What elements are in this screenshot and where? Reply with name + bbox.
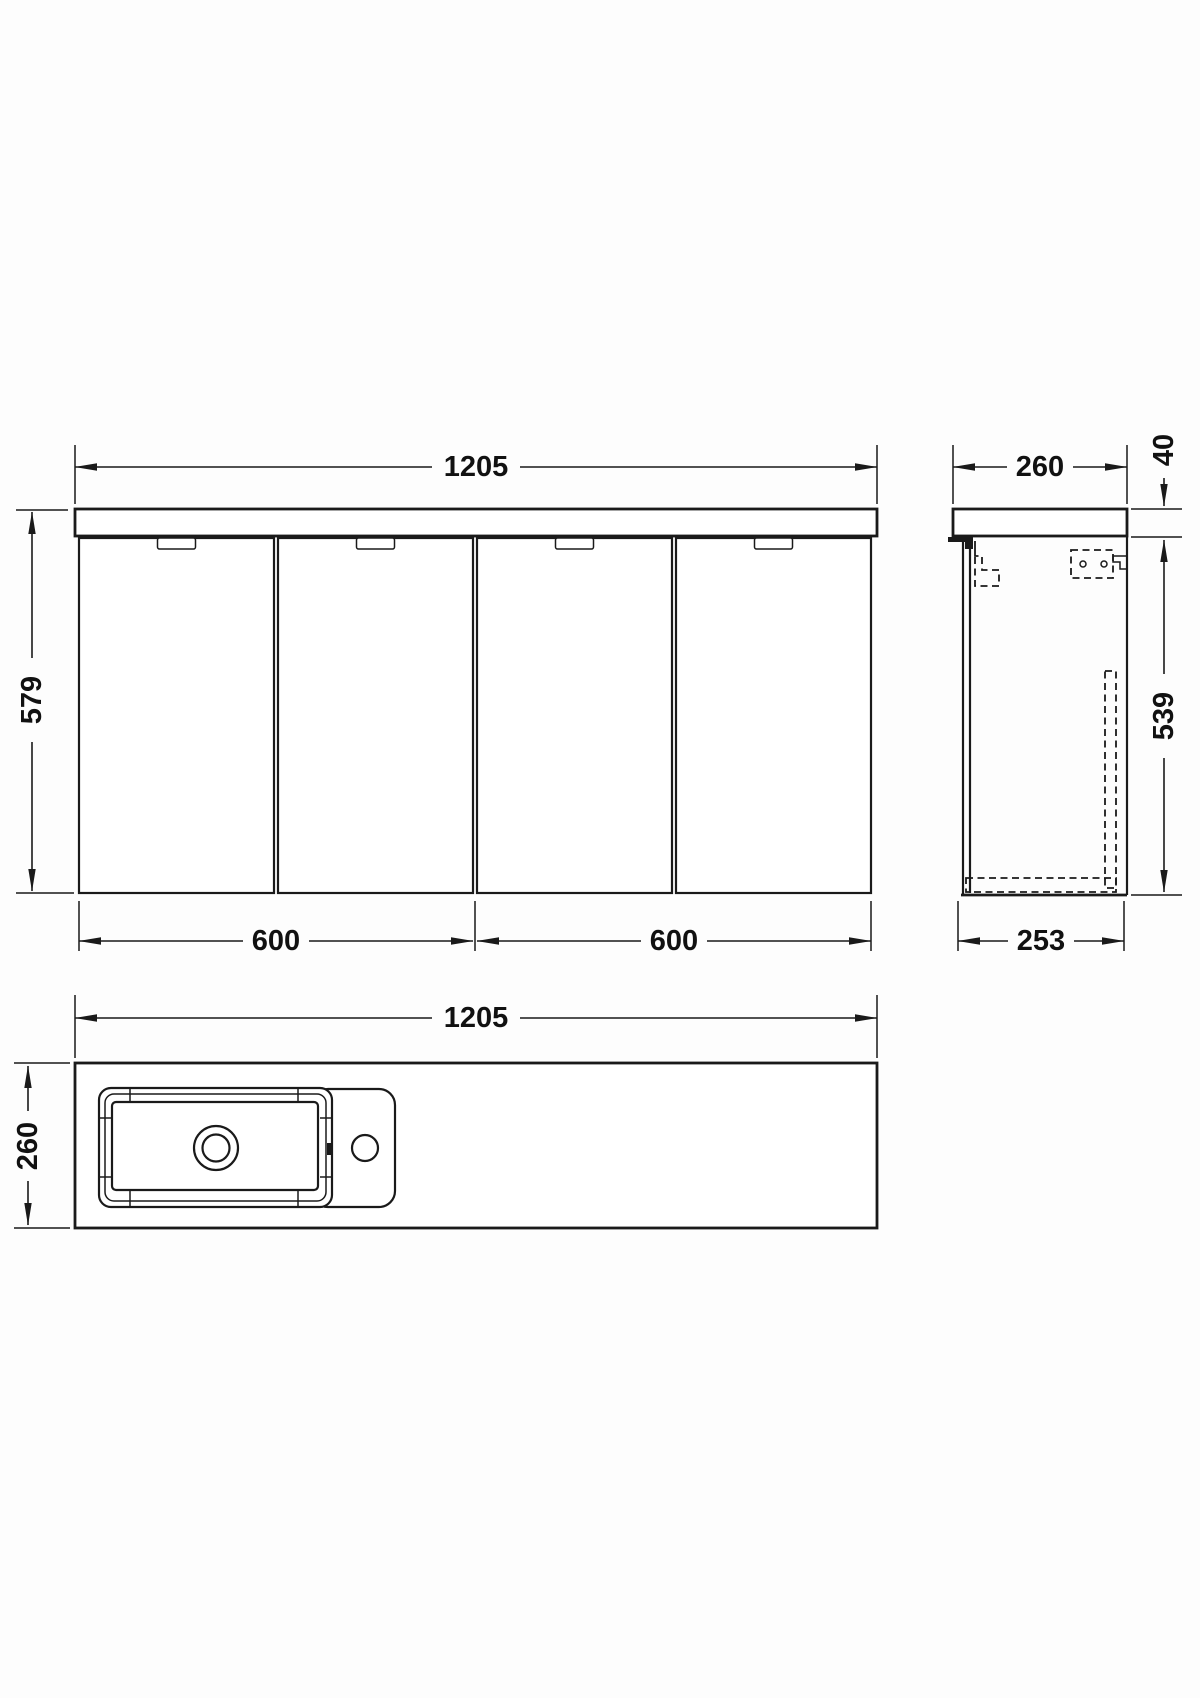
technical-drawing-page: 1205 579 600 600 — [0, 0, 1200, 1698]
cabinet-height-label: 539 — [1148, 692, 1180, 740]
basin-overflow-slot — [327, 1143, 331, 1155]
front-right-unit-width-label: 600 — [650, 925, 698, 957]
plan-width-label: 1205 — [444, 1002, 509, 1034]
bracket-screw-hole-2 — [1101, 561, 1107, 567]
tap-hole — [352, 1135, 378, 1161]
worktop-thickness-dimension: 40 — [1131, 422, 1182, 537]
front-door-1 — [79, 538, 274, 893]
cabinet-height-dimension: 539 — [1131, 540, 1182, 895]
front-unit-width-dimensions: 600 600 — [79, 901, 871, 957]
plan-depth-label: 260 — [12, 1122, 44, 1170]
bracket-screw-hole-1 — [1080, 561, 1086, 567]
side-depth-dimension: 260 — [953, 445, 1127, 504]
front-elevation-view: 1205 579 600 600 — [16, 445, 877, 957]
door-4-handle-notch — [755, 538, 793, 549]
front-door-4 — [676, 538, 871, 893]
door-3-handle-notch — [556, 538, 594, 549]
front-width-label: 1205 — [444, 451, 509, 483]
side-back-rail-hidden — [1105, 671, 1116, 888]
worktop-thickness-label: 40 — [1148, 434, 1180, 466]
side-hinge-plate-hidden — [975, 541, 999, 586]
side-wall-hook — [1113, 556, 1127, 569]
basin-drain-inner — [203, 1135, 230, 1162]
cabinet-depth-label: 253 — [1017, 925, 1065, 957]
side-worktop — [953, 509, 1127, 536]
plan-depth-dimension: 260 — [12, 1063, 70, 1228]
front-height-dimension: 579 — [16, 510, 74, 893]
door-1-handle-notch — [158, 538, 196, 549]
side-section-view: 260 40 539 253 — [948, 422, 1182, 957]
door-2-handle-notch — [357, 538, 395, 549]
plan-width-dimension: 1205 — [75, 995, 877, 1058]
front-worktop — [75, 509, 877, 536]
side-depth-label: 260 — [1016, 451, 1064, 483]
front-height-label: 579 — [16, 676, 48, 724]
front-left-unit-width-label: 600 — [252, 925, 300, 957]
front-width-dimension: 1205 — [75, 445, 877, 504]
front-door-2 — [278, 538, 473, 893]
vanity-unit-drawing: 1205 579 600 600 — [0, 0, 1200, 1698]
front-door-3 — [477, 538, 672, 893]
plan-view: 1205 260 — [12, 995, 877, 1228]
cabinet-depth-dimension: 253 — [958, 901, 1124, 957]
side-bottom-panel-hidden — [966, 878, 1116, 892]
